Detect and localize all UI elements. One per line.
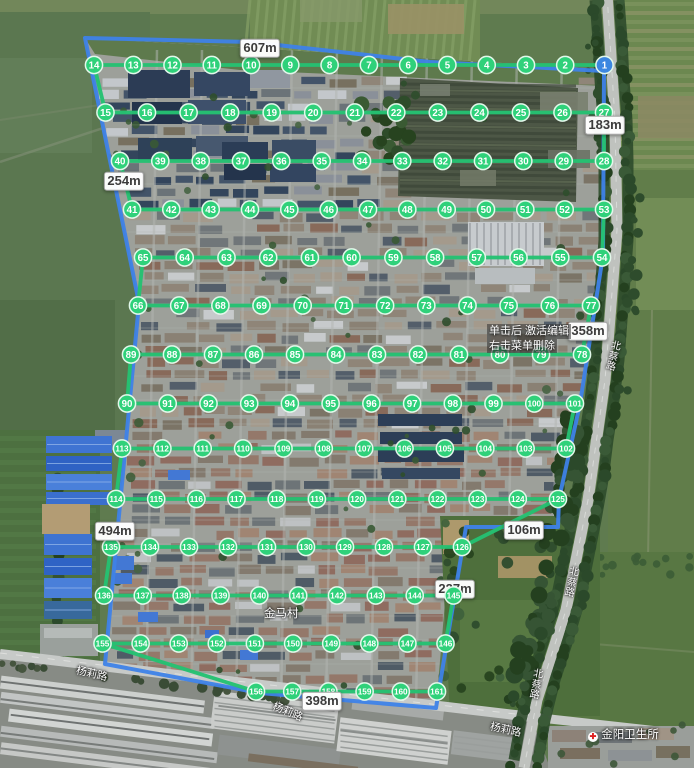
svg-text:104: 104 — [478, 444, 492, 453]
svg-text:119: 119 — [310, 495, 324, 504]
svg-text:124: 124 — [511, 495, 525, 504]
svg-text:149: 149 — [324, 639, 338, 648]
svg-text:121: 121 — [390, 495, 404, 504]
svg-text:157: 157 — [285, 687, 299, 696]
svg-text:83: 83 — [372, 350, 383, 361]
svg-text:128: 128 — [377, 543, 391, 552]
svg-text:126: 126 — [455, 543, 469, 552]
svg-text:3: 3 — [523, 60, 529, 71]
svg-text:33: 33 — [397, 156, 408, 167]
svg-text:87: 87 — [208, 350, 219, 361]
svg-text:10: 10 — [246, 60, 257, 71]
svg-text:161: 161 — [430, 687, 444, 696]
svg-text:120: 120 — [350, 495, 364, 504]
svg-text:57: 57 — [471, 253, 482, 264]
svg-text:16: 16 — [142, 108, 153, 119]
svg-text:95: 95 — [325, 399, 336, 410]
svg-text:111: 111 — [196, 444, 209, 453]
svg-text:82: 82 — [413, 350, 424, 361]
svg-text:14: 14 — [89, 60, 100, 71]
svg-text:137: 137 — [136, 591, 150, 600]
svg-text:60: 60 — [346, 253, 357, 264]
svg-text:73: 73 — [421, 301, 432, 312]
svg-text:1: 1 — [602, 60, 608, 71]
svg-text:29: 29 — [558, 156, 569, 167]
svg-text:41: 41 — [127, 205, 138, 216]
svg-text:37: 37 — [236, 156, 247, 167]
svg-text:136: 136 — [97, 591, 111, 600]
svg-text:5: 5 — [445, 60, 451, 71]
svg-text:24: 24 — [474, 108, 485, 119]
svg-text:2: 2 — [563, 60, 568, 71]
svg-text:146: 146 — [439, 639, 453, 648]
svg-text:93: 93 — [244, 399, 255, 410]
svg-text:26: 26 — [557, 108, 568, 119]
svg-text:19: 19 — [266, 108, 277, 119]
svg-text:142: 142 — [330, 591, 344, 600]
svg-text:159: 159 — [358, 687, 372, 696]
svg-text:25: 25 — [516, 108, 527, 119]
svg-text:6: 6 — [406, 60, 412, 71]
svg-text:72: 72 — [380, 301, 391, 312]
svg-text:108: 108 — [317, 444, 331, 453]
svg-text:22: 22 — [391, 108, 402, 119]
svg-text:131: 131 — [260, 543, 274, 552]
svg-text:47: 47 — [363, 205, 374, 216]
svg-text:114: 114 — [109, 495, 123, 504]
svg-text:105: 105 — [438, 444, 452, 453]
svg-text:133: 133 — [182, 543, 196, 552]
svg-text:31: 31 — [478, 156, 489, 167]
svg-text:155: 155 — [96, 639, 110, 648]
svg-text:20: 20 — [308, 108, 319, 119]
svg-text:88: 88 — [167, 350, 178, 361]
svg-text:54: 54 — [597, 253, 608, 264]
svg-text:86: 86 — [249, 350, 260, 361]
svg-text:39: 39 — [155, 156, 166, 167]
svg-text:127: 127 — [416, 543, 430, 552]
svg-text:70: 70 — [297, 301, 308, 312]
svg-text:143: 143 — [369, 591, 383, 600]
svg-text:113: 113 — [115, 444, 129, 453]
svg-text:30: 30 — [518, 156, 529, 167]
svg-text:99: 99 — [488, 399, 499, 410]
svg-text:145: 145 — [447, 591, 461, 600]
svg-text:34: 34 — [357, 156, 368, 167]
svg-text:48: 48 — [402, 205, 413, 216]
svg-text:18: 18 — [225, 108, 236, 119]
svg-text:151: 151 — [248, 639, 262, 648]
svg-text:84: 84 — [331, 350, 342, 361]
svg-text:71: 71 — [339, 301, 350, 312]
svg-text:112: 112 — [156, 444, 170, 453]
svg-text:118: 118 — [270, 495, 284, 504]
svg-text:11: 11 — [207, 60, 218, 71]
svg-text:21: 21 — [349, 108, 360, 119]
svg-text:58: 58 — [430, 253, 441, 264]
svg-text:56: 56 — [513, 253, 524, 264]
svg-text:65: 65 — [138, 253, 149, 264]
svg-text:43: 43 — [205, 205, 216, 216]
svg-text:132: 132 — [221, 543, 235, 552]
svg-text:107: 107 — [357, 444, 371, 453]
svg-text:77: 77 — [586, 301, 597, 312]
svg-text:64: 64 — [179, 253, 190, 264]
svg-text:150: 150 — [286, 639, 300, 648]
svg-text:154: 154 — [134, 639, 148, 648]
svg-text:42: 42 — [166, 205, 177, 216]
svg-text:28: 28 — [599, 156, 610, 167]
svg-text:78: 78 — [577, 350, 588, 361]
svg-text:76: 76 — [544, 301, 555, 312]
svg-text:102: 102 — [559, 444, 573, 453]
svg-text:109: 109 — [277, 444, 291, 453]
svg-text:115: 115 — [150, 495, 164, 504]
svg-text:141: 141 — [291, 591, 305, 600]
svg-text:23: 23 — [432, 108, 443, 119]
svg-text:62: 62 — [263, 253, 274, 264]
svg-text:32: 32 — [437, 156, 448, 167]
svg-text:156: 156 — [249, 687, 263, 696]
svg-text:4: 4 — [484, 60, 490, 71]
svg-text:96: 96 — [366, 399, 377, 410]
svg-text:91: 91 — [162, 399, 173, 410]
svg-text:147: 147 — [401, 639, 415, 648]
svg-text:67: 67 — [174, 301, 185, 312]
svg-text:9: 9 — [288, 60, 294, 71]
svg-text:129: 129 — [338, 543, 352, 552]
svg-text:140: 140 — [252, 591, 266, 600]
svg-text:15: 15 — [100, 108, 111, 119]
svg-text:66: 66 — [133, 301, 144, 312]
svg-text:44: 44 — [245, 205, 256, 216]
svg-text:13: 13 — [128, 60, 139, 71]
svg-text:46: 46 — [323, 205, 334, 216]
svg-text:61: 61 — [305, 253, 316, 264]
svg-text:92: 92 — [203, 399, 214, 410]
svg-text:122: 122 — [431, 495, 445, 504]
svg-text:117: 117 — [230, 495, 244, 504]
svg-text:74: 74 — [462, 301, 473, 312]
svg-text:101: 101 — [568, 399, 582, 408]
svg-text:49: 49 — [441, 205, 452, 216]
svg-text:12: 12 — [167, 60, 178, 71]
svg-text:153: 153 — [172, 639, 186, 648]
svg-text:7: 7 — [366, 60, 371, 71]
svg-text:36: 36 — [276, 156, 287, 167]
svg-text:63: 63 — [221, 253, 232, 264]
svg-text:51: 51 — [520, 205, 531, 216]
svg-text:100: 100 — [527, 399, 541, 408]
svg-text:85: 85 — [290, 350, 301, 361]
svg-text:68: 68 — [215, 301, 226, 312]
svg-text:75: 75 — [503, 301, 514, 312]
svg-text:148: 148 — [362, 639, 376, 648]
svg-text:116: 116 — [190, 495, 204, 504]
svg-text:144: 144 — [408, 591, 422, 600]
svg-text:139: 139 — [214, 591, 228, 600]
svg-text:152: 152 — [210, 639, 224, 648]
svg-text:125: 125 — [551, 495, 565, 504]
svg-text:53: 53 — [599, 205, 610, 216]
svg-text:123: 123 — [471, 495, 485, 504]
svg-text:8: 8 — [327, 60, 333, 71]
svg-text:17: 17 — [183, 108, 194, 119]
svg-text:38: 38 — [195, 156, 206, 167]
svg-text:130: 130 — [299, 543, 313, 552]
svg-text:40: 40 — [115, 156, 126, 167]
svg-text:94: 94 — [285, 399, 296, 410]
svg-text:106: 106 — [398, 444, 412, 453]
svg-text:97: 97 — [407, 399, 418, 410]
svg-text:89: 89 — [126, 350, 137, 361]
svg-text:110: 110 — [236, 444, 250, 453]
svg-text:35: 35 — [316, 156, 327, 167]
svg-text:59: 59 — [388, 253, 399, 264]
svg-text:50: 50 — [481, 205, 492, 216]
svg-text:55: 55 — [555, 253, 566, 264]
svg-text:45: 45 — [284, 205, 295, 216]
svg-text:135: 135 — [104, 543, 118, 552]
svg-text:138: 138 — [175, 591, 189, 600]
svg-text:103: 103 — [519, 444, 533, 453]
svg-text:52: 52 — [559, 205, 570, 216]
svg-text:90: 90 — [122, 399, 133, 410]
svg-text:160: 160 — [394, 687, 408, 696]
svg-text:98: 98 — [447, 399, 458, 410]
svg-text:69: 69 — [256, 301, 267, 312]
svg-text:134: 134 — [143, 543, 157, 552]
svg-text:81: 81 — [454, 350, 465, 361]
